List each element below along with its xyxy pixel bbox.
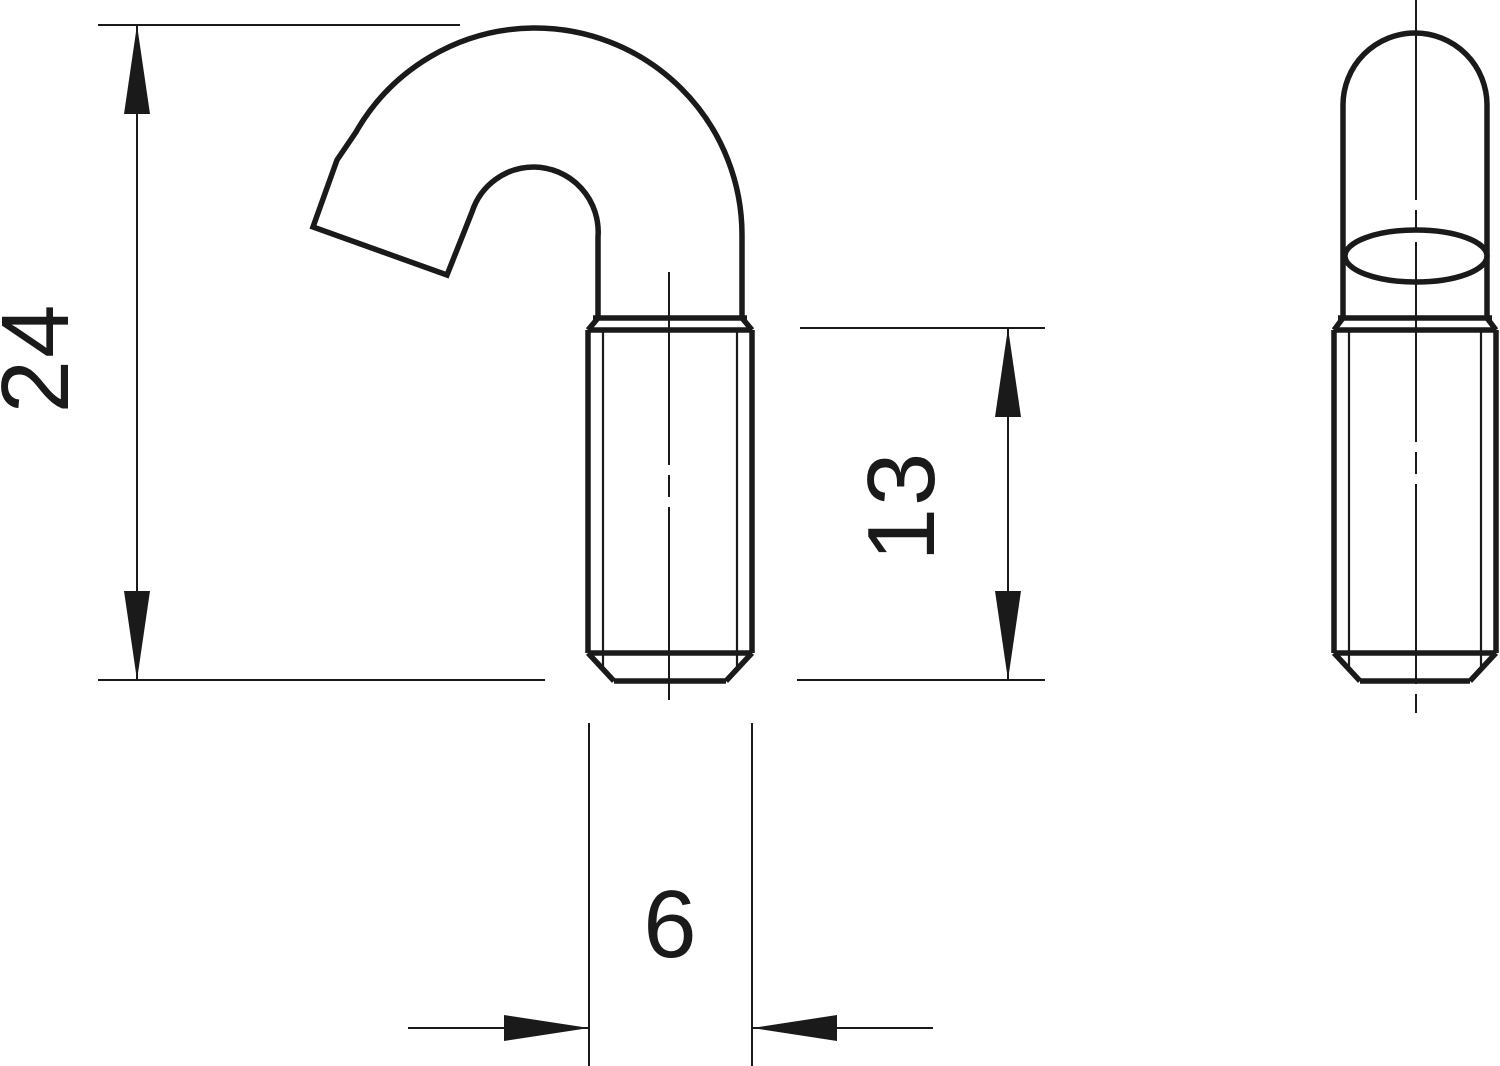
dimension-label-thread-length: 13 (848, 451, 955, 562)
technical-drawing-canvas: 24 13 6 (0, 0, 1500, 1066)
dimension-label-overall-height: 24 (0, 303, 89, 414)
hook-technical-drawing: 24 13 6 (0, 0, 1500, 1066)
dimension-label-thread-diameter: 6 (643, 871, 698, 978)
